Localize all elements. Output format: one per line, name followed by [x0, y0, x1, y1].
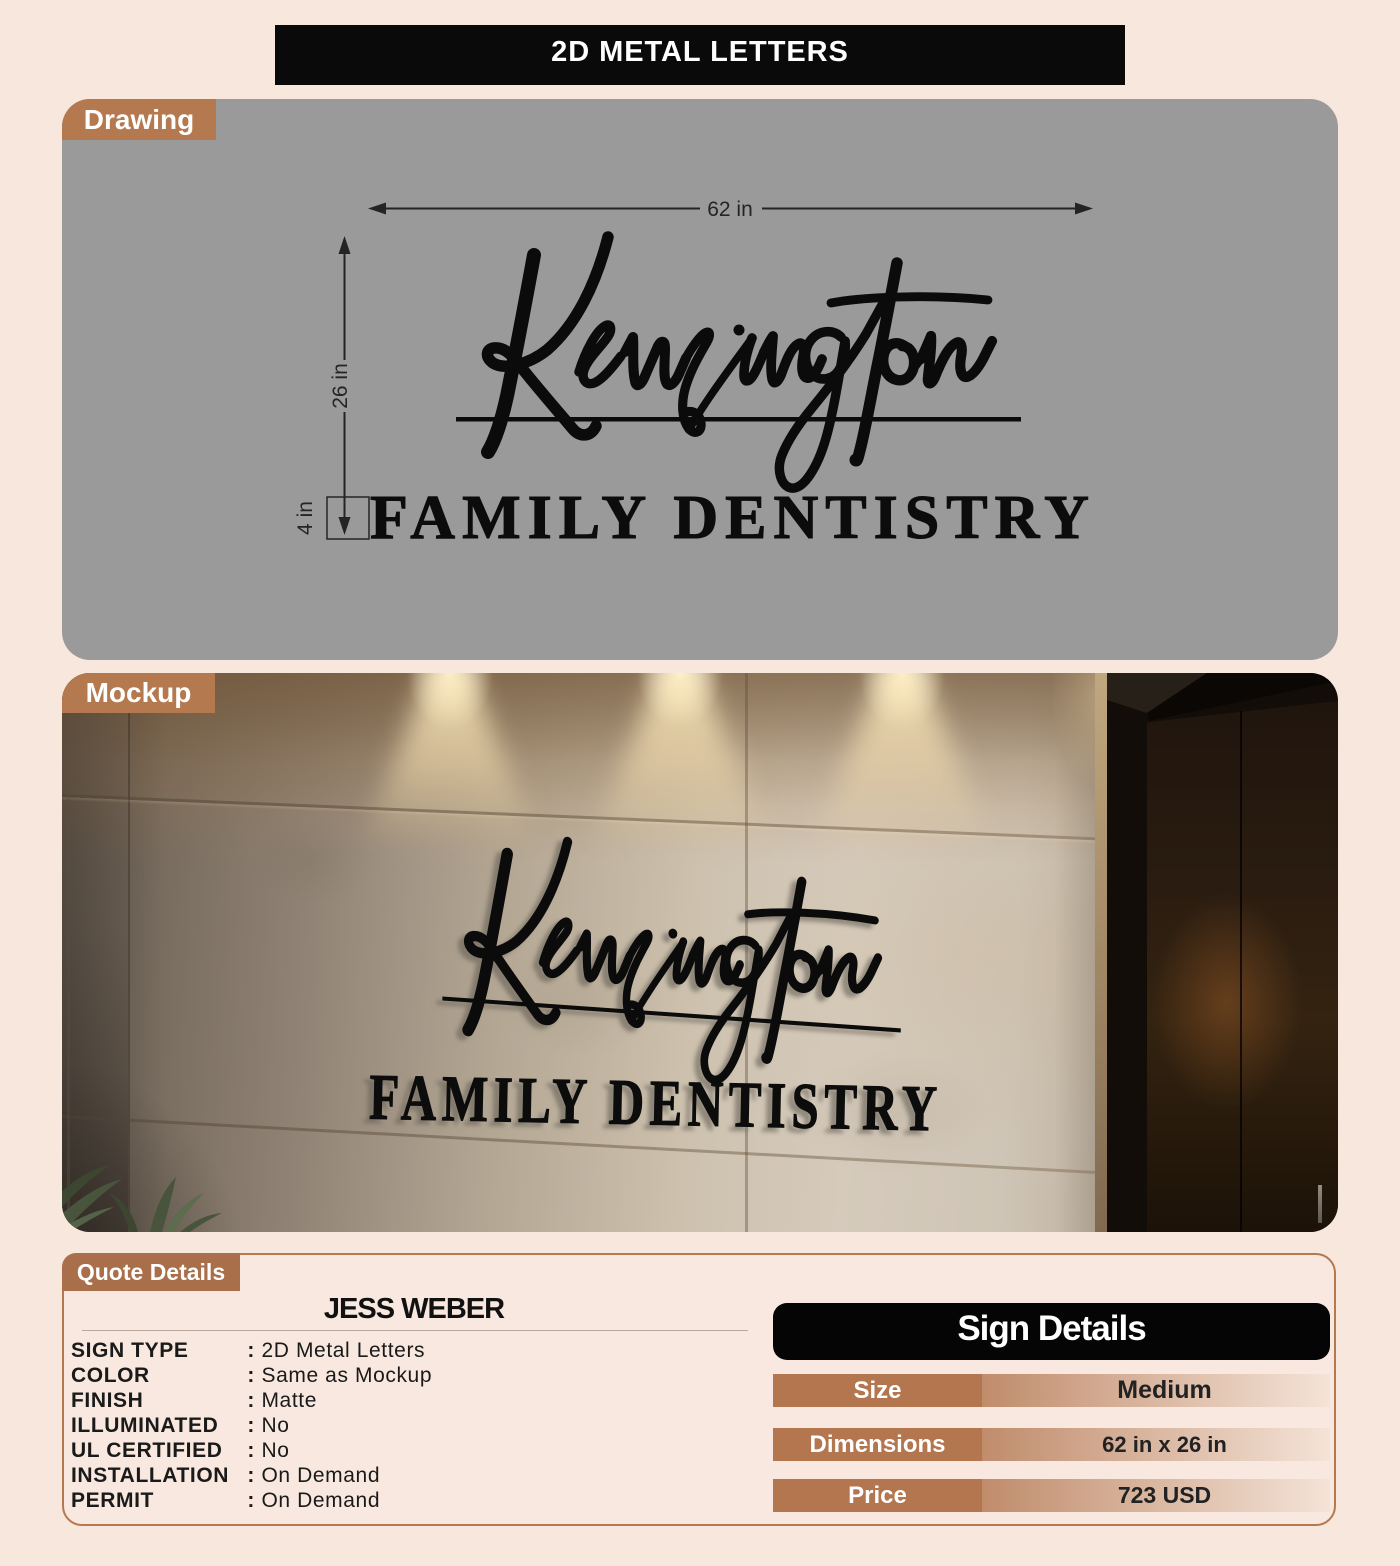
- svg-text:62 in: 62 in: [707, 198, 753, 221]
- svg-text:4 in: 4 in: [294, 501, 317, 535]
- svg-text:26 in: 26 in: [329, 363, 352, 409]
